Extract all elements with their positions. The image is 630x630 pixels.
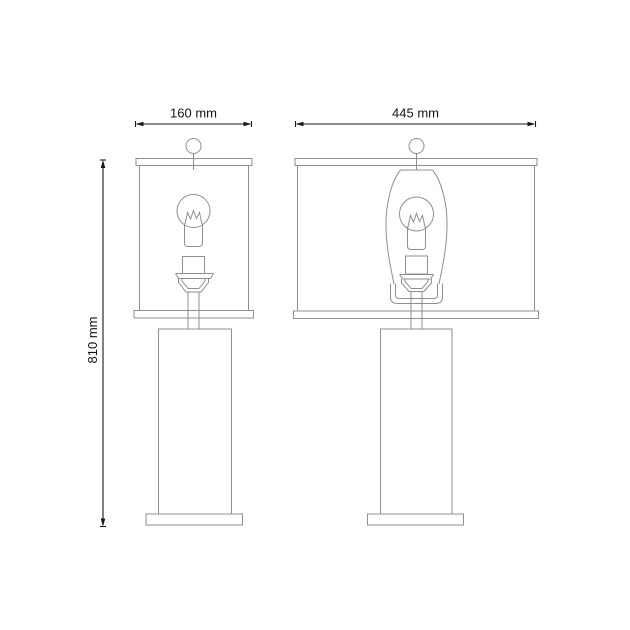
front-width-dimension: 160 mm [136, 106, 252, 128]
front-filament [185, 211, 202, 225]
side-width-arrow-left [296, 122, 304, 127]
side-socket [406, 256, 428, 274]
height-label: 810 mm [85, 317, 100, 364]
front-width-arrow-right [244, 122, 252, 127]
side-shade-bottom-rim [294, 311, 539, 319]
height-arrow-top [101, 160, 106, 168]
side-width-dimension: 445 mm [296, 106, 536, 128]
front-base-plate [146, 514, 243, 525]
side-harp [386, 170, 447, 284]
front-finial [186, 139, 201, 154]
lamp-dimension-diagram: 160 mm 445 mm 810 mm [0, 0, 630, 630]
side-harp-bracket-outer [391, 284, 443, 304]
side-width-arrow-right [528, 122, 536, 127]
side-socket-cup-inner [405, 279, 428, 289]
front-shade-bottom-rim [134, 311, 254, 319]
height-arrow-bottom [101, 519, 106, 527]
side-socket-cup-outer [402, 279, 432, 292]
front-socket-cup-outer [179, 279, 209, 293]
front-width-arrow-left [136, 122, 144, 127]
side-filament [408, 214, 425, 228]
side-body [381, 329, 453, 514]
front-socket [183, 257, 205, 274]
front-width-label: 160 mm [170, 106, 217, 121]
side-view [294, 139, 539, 526]
front-bulb-base [185, 224, 203, 247]
side-width-label: 445 mm [392, 106, 439, 121]
diagram-svg: 160 mm 445 mm 810 mm [0, 0, 630, 630]
front-socket-cup-inner [182, 279, 205, 289]
front-view [134, 139, 254, 526]
front-socket-flange [176, 274, 214, 279]
side-finial [409, 139, 424, 154]
height-dimension: 810 mm [85, 160, 106, 527]
side-socket-flange [400, 275, 434, 280]
side-base-plate [368, 514, 464, 525]
front-body [159, 329, 232, 514]
